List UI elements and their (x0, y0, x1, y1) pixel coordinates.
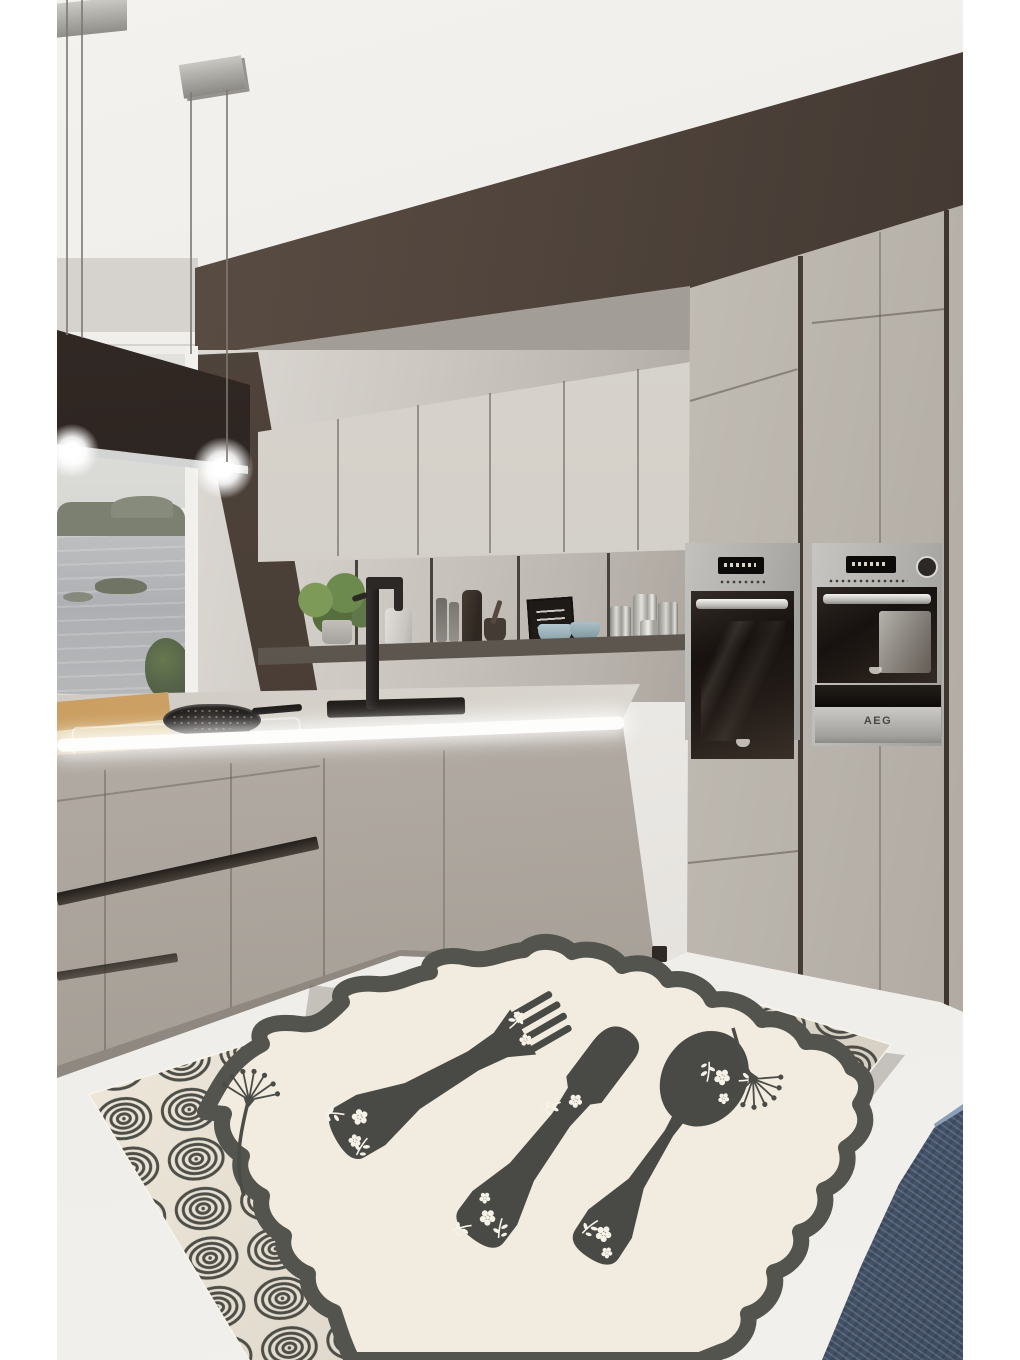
left-margin (0, 0, 57, 1360)
kitchen-scene: AEG (0, 0, 1020, 1360)
right-margin (963, 0, 1020, 1360)
product-photo-canvas: AEG (0, 0, 1020, 1360)
kitchen-rug (0, 0, 1020, 1360)
